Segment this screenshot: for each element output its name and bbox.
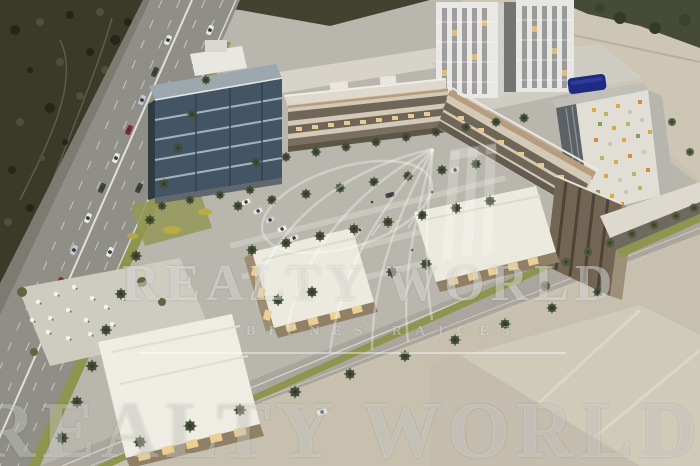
watermark-underline: [138, 352, 566, 354]
residential-towers: [436, 0, 574, 98]
scene: [0, 0, 700, 466]
rendering-image: REALTY WORLD BIENES RAICES REALTY WORLD: [0, 0, 700, 466]
